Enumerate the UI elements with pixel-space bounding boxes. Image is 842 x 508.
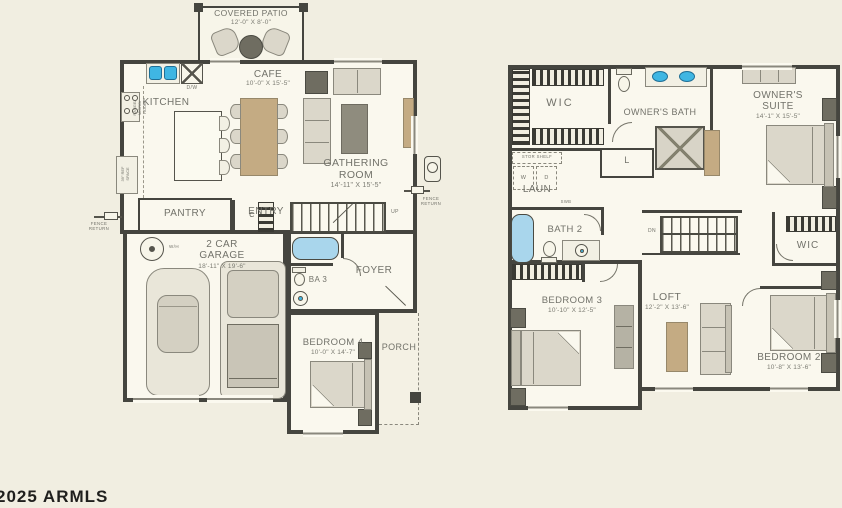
bedroom4-label: BEDROOM 4 <box>290 338 376 348</box>
loft-coffee-table <box>666 322 688 372</box>
window <box>834 136 841 178</box>
window <box>742 63 792 70</box>
island-stool <box>219 138 230 153</box>
bath2-toilet-bowl <box>543 241 556 257</box>
bedroom3-label: BEDROOM 3 <box>528 296 616 306</box>
kitchen-sink-basin <box>149 66 162 80</box>
porch-label: PORCH <box>380 343 418 353</box>
cafe-chair <box>277 129 288 144</box>
bedroom3-headboard <box>511 330 521 386</box>
window <box>655 385 693 392</box>
dresser-divider <box>760 69 761 82</box>
porch-area <box>379 313 419 425</box>
cafe-chair <box>230 129 241 144</box>
dresser-divider <box>778 69 779 82</box>
coffee-table <box>341 104 368 154</box>
loft-dims: 12'-2" X 13'-6" <box>634 304 700 311</box>
garage-door <box>207 395 273 403</box>
window <box>770 385 808 392</box>
utility-meter-dial <box>427 162 438 173</box>
pillow-line <box>814 297 815 349</box>
loveseat-divider <box>357 70 358 93</box>
nightstand <box>822 186 837 209</box>
bath3-label: BA 3 <box>298 276 338 285</box>
sofa-divider <box>702 351 726 352</box>
wall-segment <box>232 200 235 232</box>
bed-fold <box>768 160 790 183</box>
cafe-chair <box>230 154 241 169</box>
wic2-label: WIC <box>790 240 826 251</box>
bed-fold <box>772 328 793 349</box>
watermark: 2025 ARMLS <box>0 487 108 507</box>
wall-segment <box>772 263 840 266</box>
linen-label: L <box>620 156 634 166</box>
vanity-sink <box>652 71 668 82</box>
bed-fold <box>558 332 579 354</box>
cafe-table <box>240 98 278 176</box>
bath2-tub <box>511 214 534 263</box>
dishwasher <box>181 63 203 84</box>
swb-label: SWB <box>555 200 577 205</box>
closet-rod-hatch <box>532 69 604 86</box>
cafe-chair <box>230 104 241 119</box>
wall-segment <box>772 212 775 266</box>
window <box>834 300 841 338</box>
vanity-sink <box>679 71 695 82</box>
cafe-chair <box>277 154 288 169</box>
cafe-dims: 10'-0" X 15'-5" <box>226 80 310 87</box>
pantry-label: PANTRY <box>142 208 228 219</box>
sofa-divider <box>305 120 329 121</box>
window <box>303 430 343 437</box>
stairs-up-label: UP <box>387 210 403 216</box>
truck-cab <box>227 270 279 318</box>
covered-patio-dims: 12'-0" X 8'-0" <box>199 19 303 26</box>
closet-rod-hatch <box>512 264 582 280</box>
gathering-room-label: GATHERING ROOM <box>308 158 404 181</box>
stairs-down <box>660 216 738 253</box>
entry-closet-label: C <box>247 212 257 220</box>
pillow-line <box>533 332 534 384</box>
kitchen-label: KITCHEN <box>130 97 202 108</box>
wall-segment <box>582 262 585 282</box>
nightstand <box>358 409 372 426</box>
bath2-toilet <box>541 257 557 263</box>
floor-plan-canvas: COVERED PATIO 12'-0" X 8'-0" D/W RANGE/ … <box>0 0 842 508</box>
owners-headboard <box>824 123 834 187</box>
sofa-divider <box>702 327 726 328</box>
nightstand <box>822 98 837 121</box>
window <box>334 58 382 65</box>
nightstand <box>821 271 837 290</box>
wall-segment <box>608 68 611 124</box>
wall-segment <box>508 148 610 151</box>
wic1-label: WIC <box>532 97 588 109</box>
owners-suite-dims: 14'-1" X 15'-5" <box>732 113 824 120</box>
bath3-tub <box>292 237 339 260</box>
patio-table <box>239 35 263 59</box>
dishwasher-label: D/W <box>180 86 204 92</box>
laundry-label: LAUN <box>514 184 560 195</box>
garage-label: 2 CAR GARAGE <box>190 239 254 261</box>
dresser <box>614 305 634 369</box>
bath2-label: BATH 2 <box>538 225 592 235</box>
dryer-label: D <box>537 175 556 181</box>
foyer-label: FOYER <box>344 265 404 276</box>
closet-rod-hatch <box>786 216 836 232</box>
truck-tailgate <box>229 378 277 379</box>
sofa <box>303 98 331 164</box>
owners-bath-toilet <box>616 68 632 75</box>
wall-segment <box>289 263 333 266</box>
railing <box>642 253 740 255</box>
garage-door <box>133 395 199 403</box>
burner <box>124 108 130 114</box>
fence-symbol <box>104 212 118 220</box>
bath3-sink-drain <box>298 296 303 301</box>
covered-patio-label: COVERED PATIO <box>199 9 303 18</box>
bedroom2-label: BEDROOM 2 <box>746 352 832 363</box>
water-heater-center <box>149 246 155 252</box>
wall-segment <box>508 207 604 210</box>
bench <box>704 130 720 176</box>
owners-bath-label: OWNER'S BATH <box>620 108 700 118</box>
fence-return-left-label: FENCE RETURN <box>82 222 116 231</box>
cafe-chair <box>277 104 288 119</box>
bedroom4-dims: 10'-0" X 14'-7" <box>292 349 374 356</box>
stairs-mid-rail <box>662 233 736 235</box>
sofa-divider <box>305 142 329 143</box>
wall-segment <box>601 207 604 235</box>
bedroom2-dims: 10'-8" X 13'-6" <box>750 364 828 371</box>
gathering-room-dims: 14'-11" X 15'-5" <box>308 182 404 190</box>
stor-shelf-label: STOR SHELF <box>513 155 561 160</box>
bedroom4-headboard <box>364 359 372 410</box>
loft-label: LOFT <box>642 292 692 304</box>
dresser-divider <box>616 326 632 327</box>
owners-suite-label: OWNER'S SUITE <box>740 90 816 112</box>
shower <box>655 126 705 170</box>
kitchen-island <box>174 111 222 181</box>
bed-fold <box>312 385 334 406</box>
porch-post <box>410 392 421 403</box>
bath2-sink-drain <box>580 249 584 253</box>
island-stool <box>219 160 230 175</box>
ref-note: 39" REF SPACE <box>121 156 133 192</box>
bedroom3-dims: 10'-10" X 12'-5" <box>530 307 614 314</box>
stairs-down-label: DN <box>644 229 660 235</box>
water-heater-label: W/H <box>164 245 184 250</box>
window <box>411 116 418 154</box>
car-windshield <box>159 306 197 307</box>
dresser-divider <box>616 347 632 348</box>
fence-return-right-label: FENCE RETURN <box>416 197 446 206</box>
closet-rod-hatch <box>512 69 530 145</box>
kitchen-sink-basin <box>164 66 177 80</box>
window <box>528 404 568 411</box>
wall-segment <box>642 210 742 213</box>
washer-label: W <box>514 175 533 181</box>
pillow-line <box>812 127 813 183</box>
stor-shelf: STOR SHELF <box>512 152 562 164</box>
owners-bath-toilet-bowl <box>618 76 630 92</box>
nightstand <box>510 308 526 328</box>
window <box>210 58 240 65</box>
garage-dims: 18'-11" X 19'-6" <box>178 263 266 270</box>
range-note: RANGE/ MICRO/ HOOD <box>133 89 157 127</box>
closet-rod-hatch <box>532 128 604 145</box>
wall-segment <box>341 232 344 258</box>
car-roof <box>157 295 199 353</box>
fence-symbol <box>411 186 424 194</box>
pillow-line <box>352 363 353 406</box>
nightstand <box>510 388 526 406</box>
island-stool <box>219 116 230 131</box>
cafe-label: CAFE <box>226 69 310 80</box>
loft-sofa-back <box>725 305 732 373</box>
